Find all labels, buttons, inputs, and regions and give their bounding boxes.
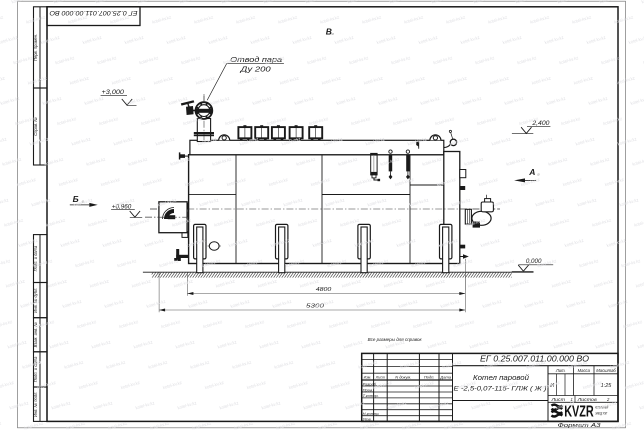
- svg-text:+3,000: +3,000: [102, 90, 125, 96]
- svg-text:Н.контр.: Н.контр.: [363, 411, 380, 416]
- svg-text:Подп.: Подп.: [424, 375, 435, 380]
- svg-text:4800: 4800: [316, 287, 332, 293]
- svg-text:Дата: Дата: [439, 375, 451, 380]
- svg-text:Изм.: Изм.: [364, 376, 372, 380]
- svg-text:Инв. № подл.: Инв. № подл.: [33, 391, 38, 416]
- svg-text:Котел паровой: Котел паровой: [473, 373, 529, 382]
- svg-text:Листов: Листов: [577, 397, 598, 402]
- svg-text:Пров.: Пров.: [363, 387, 374, 392]
- svg-text:Лит.: Лит.: [555, 368, 566, 373]
- svg-text:Перв. примен.: Перв. примен.: [33, 34, 38, 61]
- svg-text:Масса: Масса: [578, 368, 591, 373]
- svg-text:Лист: Лист: [550, 397, 565, 402]
- svg-text:1:25: 1:25: [601, 383, 613, 389]
- svg-text:А: А: [528, 167, 535, 177]
- svg-text:Лист: Лист: [375, 376, 385, 380]
- svg-text:Т.контр.: Т.контр.: [363, 393, 379, 398]
- svg-text:ЗАВОД РЭП: ЗАВОД РЭП: [595, 411, 607, 415]
- svg-text:Утв.: Утв.: [363, 417, 372, 422]
- svg-text:Ду 200: Ду 200: [239, 67, 270, 74]
- svg-text:N докум.: N докум.: [395, 375, 411, 380]
